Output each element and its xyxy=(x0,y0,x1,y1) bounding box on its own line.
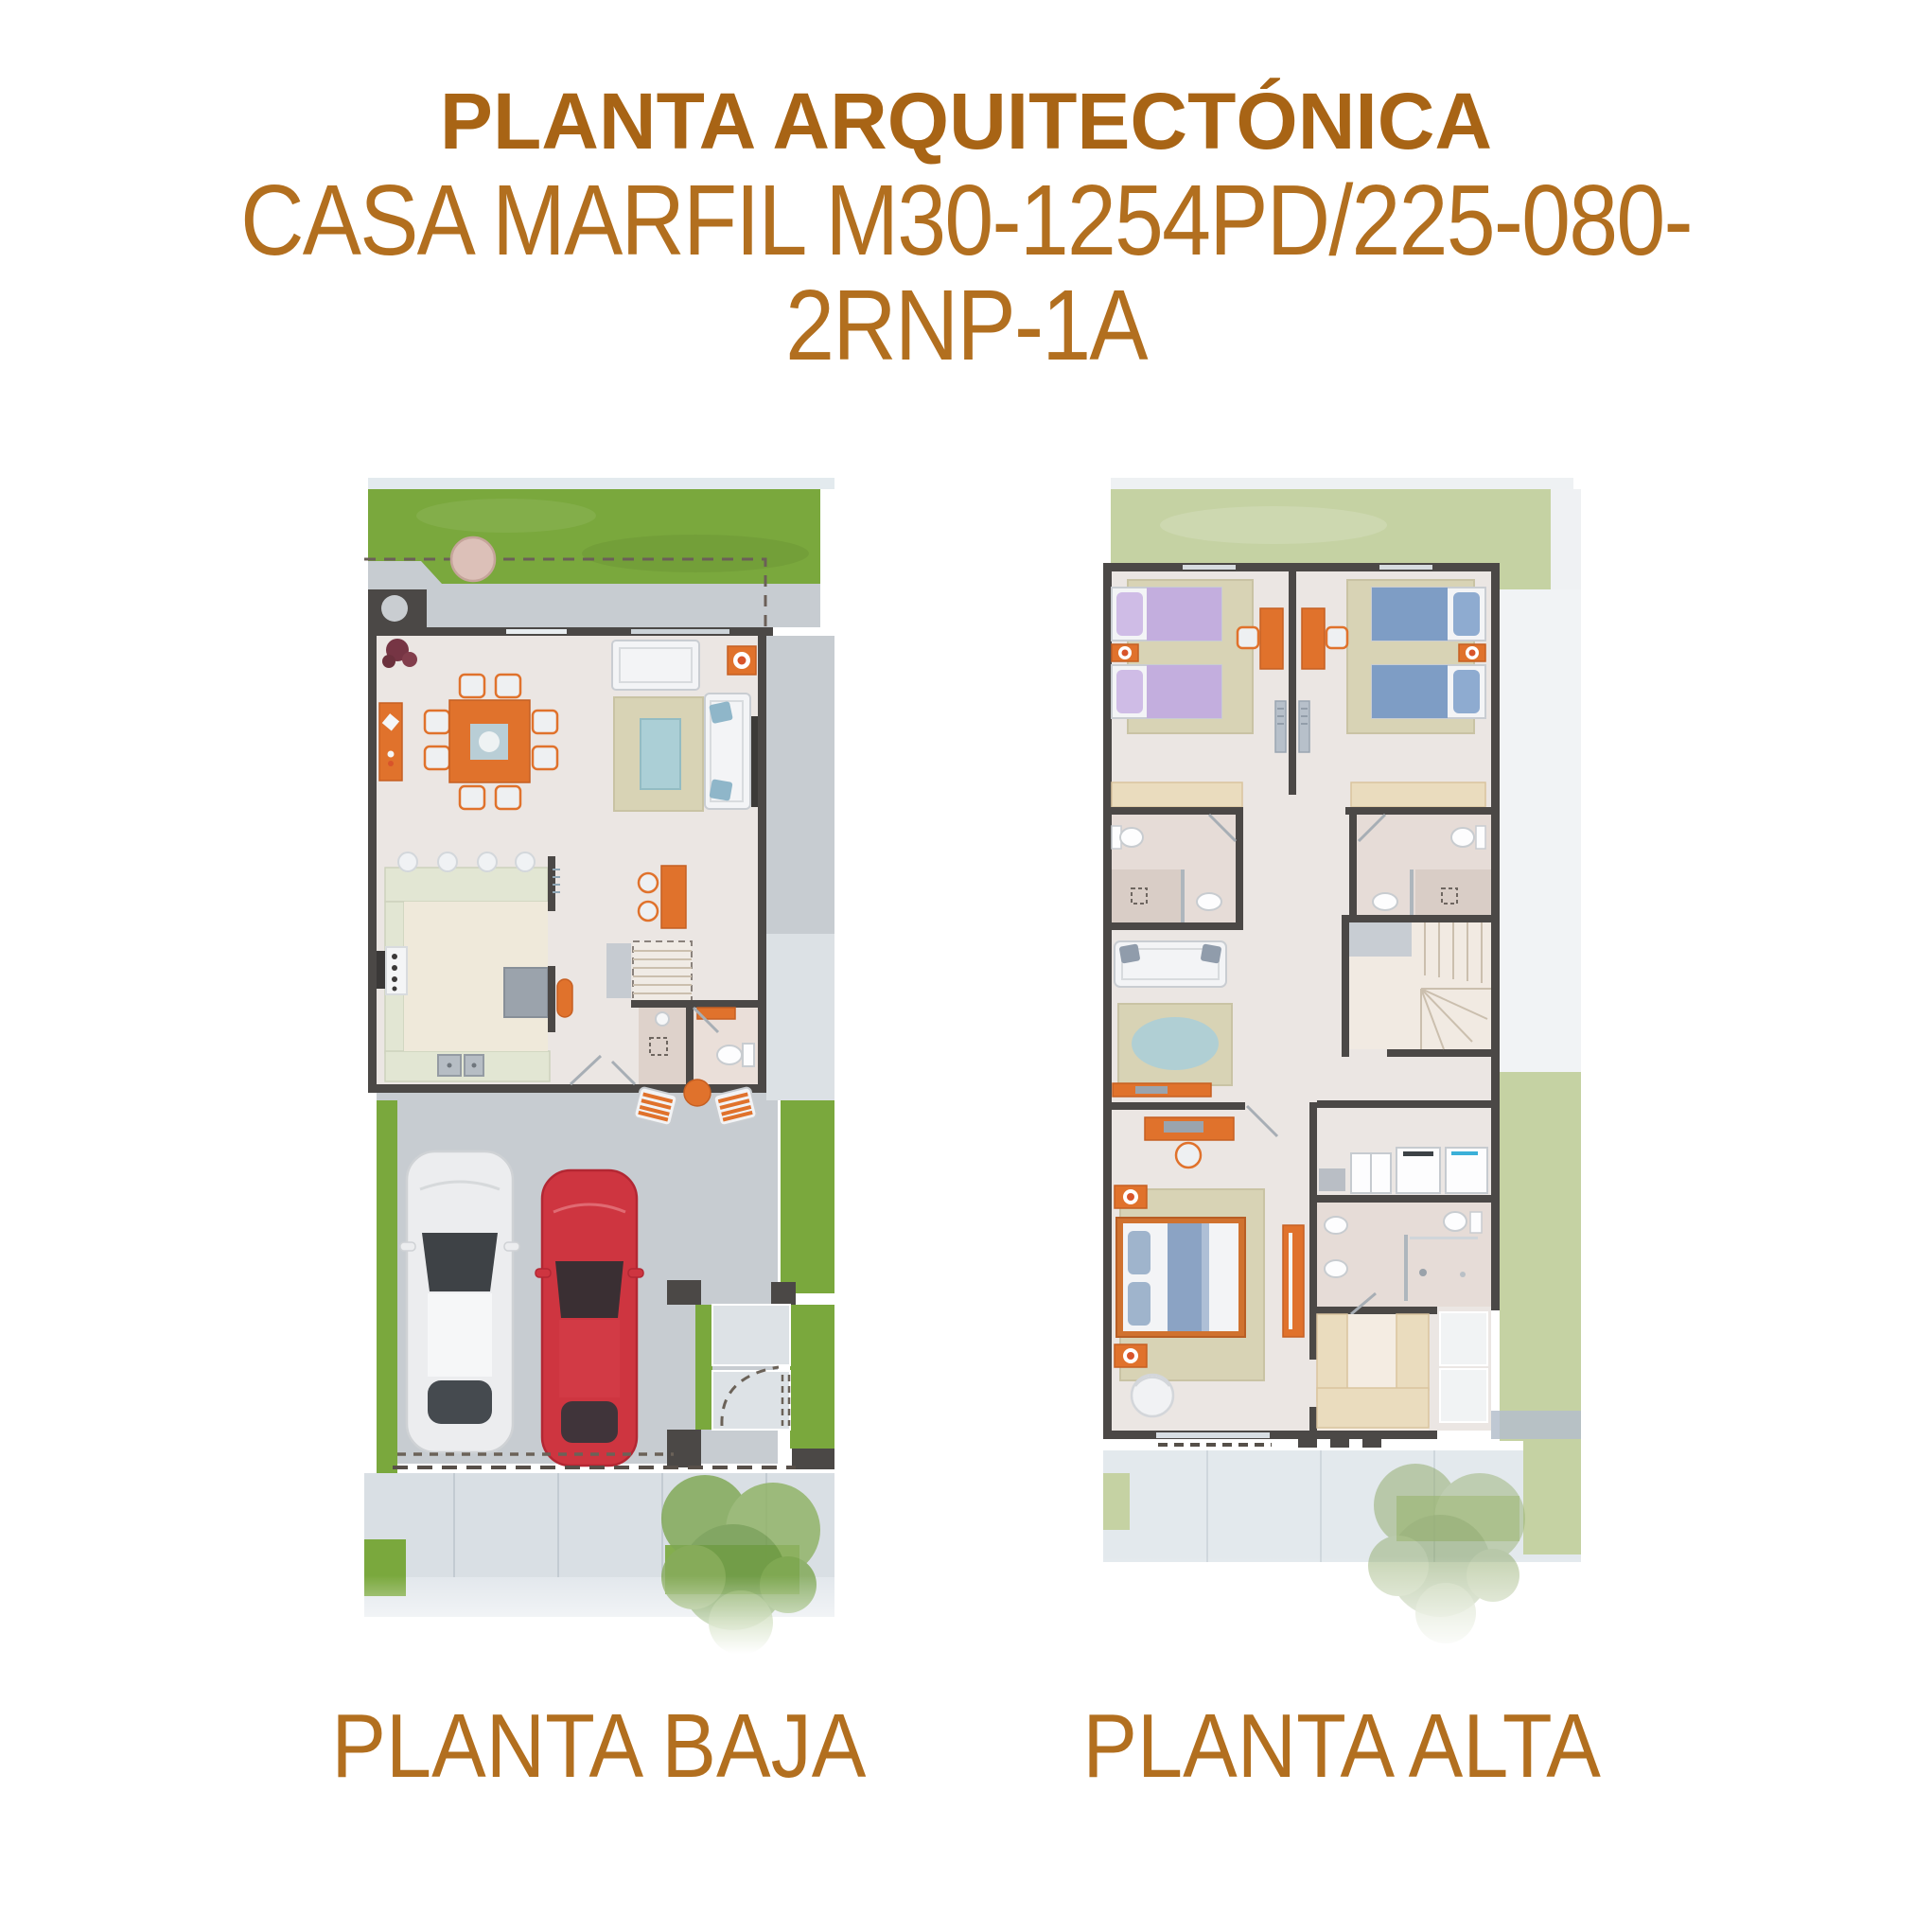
desk xyxy=(1260,608,1283,669)
closet-3 xyxy=(1351,782,1485,807)
model-code-text: CASA MARFIL M30-1254PD/225-080-2RNP-1A xyxy=(116,168,1817,379)
toilet xyxy=(1451,828,1474,847)
master-bathroom xyxy=(1317,1203,1491,1314)
desk xyxy=(1302,608,1325,669)
pillow xyxy=(709,779,732,801)
tree-marker xyxy=(451,537,495,581)
side-yard-left xyxy=(377,1100,397,1505)
bottom-fade xyxy=(364,1575,834,1654)
bar-stool xyxy=(398,852,417,871)
stairs xyxy=(606,941,692,1002)
bathroom-3 xyxy=(1357,815,1491,922)
console-table xyxy=(379,703,402,781)
side-yard-right xyxy=(1500,1072,1581,1441)
white-car xyxy=(400,1151,519,1452)
floorplan-poster: PLANTA ARQUITECTÓNICA CASA MARFIL M30-12… xyxy=(0,0,1932,1932)
walk-band xyxy=(1491,1411,1581,1439)
bar-stool xyxy=(516,852,535,871)
accent-chair xyxy=(1132,1375,1173,1416)
window-bedroom2 xyxy=(1183,565,1236,570)
model-code: CASA MARFIL M30-1254PD/225-080-2RNP-1A xyxy=(0,168,1932,379)
balcony-posts xyxy=(1298,1439,1381,1448)
bar-stool xyxy=(478,852,497,871)
side-path-right xyxy=(766,636,834,934)
walk-in-closet xyxy=(1317,1314,1429,1431)
coffee-table xyxy=(641,719,680,789)
desk-chair xyxy=(1238,627,1258,648)
kitchen xyxy=(377,852,572,1081)
planta-baja-floorplan xyxy=(364,478,834,1654)
phone-table xyxy=(557,979,572,1017)
bath-sink xyxy=(656,1012,669,1026)
neighbor-right xyxy=(1500,589,1581,1072)
toilet xyxy=(717,1045,742,1064)
tv-console xyxy=(751,716,758,807)
window-north-2 xyxy=(631,629,729,634)
side-yard-right xyxy=(781,1100,834,1293)
bathroom xyxy=(631,1000,758,1084)
window-north-1 xyxy=(506,629,567,634)
planta-baja-column: PLANTA BAJA xyxy=(302,478,896,1792)
street-edge-top xyxy=(368,478,834,489)
plans-row: PLANTA BAJA xyxy=(0,478,1932,1792)
living-room xyxy=(612,641,758,811)
family-room xyxy=(1115,941,1232,1085)
stove-icon xyxy=(377,951,386,989)
toilet xyxy=(1120,828,1143,847)
planta-alta-floorplan xyxy=(1103,478,1581,1654)
oval-rug xyxy=(1132,1017,1219,1070)
sink xyxy=(1325,1217,1347,1234)
back-walkway xyxy=(368,584,820,627)
wardrobe xyxy=(1283,1225,1304,1337)
bathroom-2 xyxy=(1112,815,1236,922)
street-edge-top xyxy=(1111,478,1573,489)
desk-chair xyxy=(1176,1143,1201,1168)
planta-baja-label: PLANTA BAJA xyxy=(302,1701,896,1792)
sink xyxy=(1197,893,1221,910)
bottom-fade xyxy=(1103,1556,1581,1654)
closet-2 xyxy=(1112,782,1242,807)
entry-porch xyxy=(368,589,427,627)
planta-alta-label: PLANTA ALTA xyxy=(1054,1701,1629,1792)
sink xyxy=(1373,893,1397,910)
shower-head xyxy=(1419,1269,1427,1276)
bar-stool xyxy=(438,852,457,871)
window-bedroom3 xyxy=(1379,565,1432,570)
patio-table xyxy=(684,1080,711,1106)
stairs-upper xyxy=(1342,915,1500,1057)
window-south xyxy=(1156,1432,1270,1438)
fridge xyxy=(504,968,548,1017)
page-title: PLANTA ARQUITECTÓNICA xyxy=(0,0,1932,163)
toilet xyxy=(1444,1212,1467,1231)
backyard-grass xyxy=(368,489,820,584)
sink xyxy=(1325,1260,1347,1277)
kitchen-bar xyxy=(385,868,548,902)
red-car xyxy=(536,1170,643,1466)
planta-alta-column: PLANTA ALTA xyxy=(1054,478,1629,1792)
desk-chair xyxy=(1326,627,1347,648)
